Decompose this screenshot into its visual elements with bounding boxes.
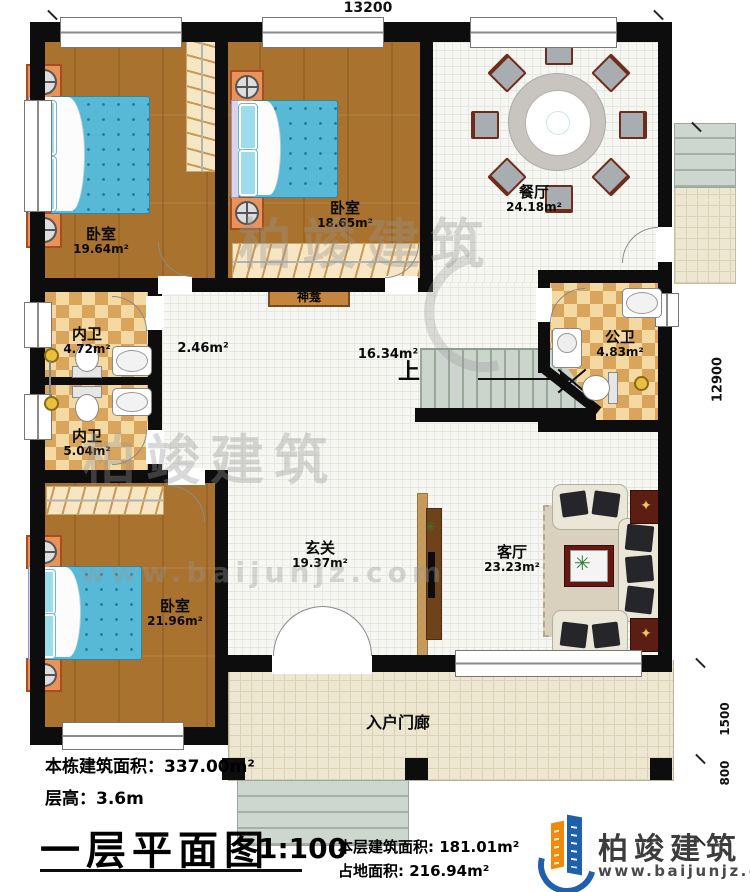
building-area-text: 本栋建筑面积：337.00m²: [45, 752, 255, 777]
dining-table-center: [546, 111, 570, 135]
door-opening: [146, 296, 164, 330]
dimension-800: 800: [718, 752, 732, 794]
door-opening: [656, 227, 674, 262]
dim-tick: [47, 10, 58, 21]
bedroom3-label: 卧室21.96m²: [136, 598, 214, 629]
dim-tick: [653, 10, 664, 21]
bath1-label: 内卫4.72m²: [54, 326, 120, 357]
scale-text: 1:100: [258, 832, 347, 865]
wall: [215, 22, 228, 292]
floor-drain-icon: [634, 376, 649, 391]
toilet-icon: [582, 375, 610, 401]
bedroom3-wardrobe: [46, 486, 164, 515]
coffee-table: ✳: [564, 545, 614, 587]
dining-chair: [619, 111, 647, 139]
dimension-right: 12900: [711, 354, 726, 406]
sink-icon: [112, 388, 152, 416]
door-opening: [146, 430, 164, 464]
porch-label: 入户门廊: [348, 714, 448, 732]
brand-logo-icon: [536, 816, 592, 888]
dimension-1500: 1500: [718, 696, 732, 742]
dim-tick: [695, 754, 706, 765]
front-door-opening: [272, 653, 372, 674]
window: [24, 100, 52, 212]
toilet-icon: [75, 394, 99, 422]
dimension-top: 13200: [336, 0, 400, 16]
title-underline: [40, 869, 302, 872]
wall: [420, 22, 433, 283]
window: [62, 722, 184, 750]
lamp-icon: [235, 201, 259, 225]
bedroom1-label: 卧室19.64m²: [55, 226, 147, 257]
stairs-up-label: 上: [394, 360, 424, 385]
door-opening: [158, 276, 192, 294]
shower-hose: [49, 374, 51, 396]
bedroom2-nightstand-top: [230, 70, 264, 104]
public-bath-label: 公卫4.83m²: [588, 329, 652, 360]
corridor-area-label: 2.46m²: [168, 342, 238, 357]
foyer-label: 玄关19.37m²: [286, 540, 354, 571]
dining-label: 餐厅24.18m²: [498, 184, 570, 215]
window: [455, 650, 642, 677]
window: [60, 17, 182, 48]
bedroom2-nightstand-bottom: [230, 196, 264, 230]
tv-icon: [428, 552, 435, 598]
sofa-main: [618, 518, 662, 622]
footprint-area-text: 占地面积: 216.94m²: [338, 860, 489, 881]
living-label: 客厅23.23m²: [478, 544, 546, 575]
door-opening: [385, 276, 418, 294]
shrine-label: 神龛: [297, 290, 321, 304]
bedroom2-label: 卧室18.65m²: [306, 200, 384, 231]
porch-pillar: [650, 758, 672, 780]
window: [24, 302, 52, 348]
sink-icon: [622, 288, 662, 318]
wall: [415, 408, 596, 422]
side-steps: [674, 123, 736, 188]
dim-tick: [695, 658, 706, 669]
bedroom1-wardrobe: [186, 30, 218, 172]
water-heater-icon: [552, 328, 582, 368]
dining-chair: [471, 111, 499, 139]
floor-height-text: 层高：3.6m: [45, 784, 144, 809]
floor-area-text: 本层建筑面积: 181.01m²: [338, 836, 519, 857]
wall: [215, 470, 228, 745]
door-opening: [168, 468, 205, 485]
pillow: [239, 150, 257, 196]
plan-title: 一层平面图: [40, 818, 270, 876]
window: [262, 17, 384, 48]
wall: [538, 270, 672, 283]
floor-plan-canvas: ✳ ✦ ✦ ✳ 神龛: [0, 0, 750, 892]
loveseat-top: [552, 484, 628, 530]
shower-handle-icon: [44, 396, 59, 411]
wall: [30, 278, 228, 292]
wall: [658, 285, 672, 672]
plant-icon: ✳: [425, 520, 436, 535]
lamp-icon: [235, 75, 259, 99]
star-icon: ✦: [640, 626, 652, 642]
brand-url: www.baijunjz.com: [598, 862, 750, 880]
porch-floor: [228, 660, 674, 781]
bath2-label: 内卫5.04m²: [54, 428, 120, 459]
plant-icon: ✳: [574, 551, 591, 575]
side-patio-floor: [674, 185, 736, 284]
window: [470, 17, 617, 48]
star-icon: ✦: [640, 498, 652, 514]
pillow: [239, 104, 257, 150]
porch-pillar: [405, 758, 428, 780]
